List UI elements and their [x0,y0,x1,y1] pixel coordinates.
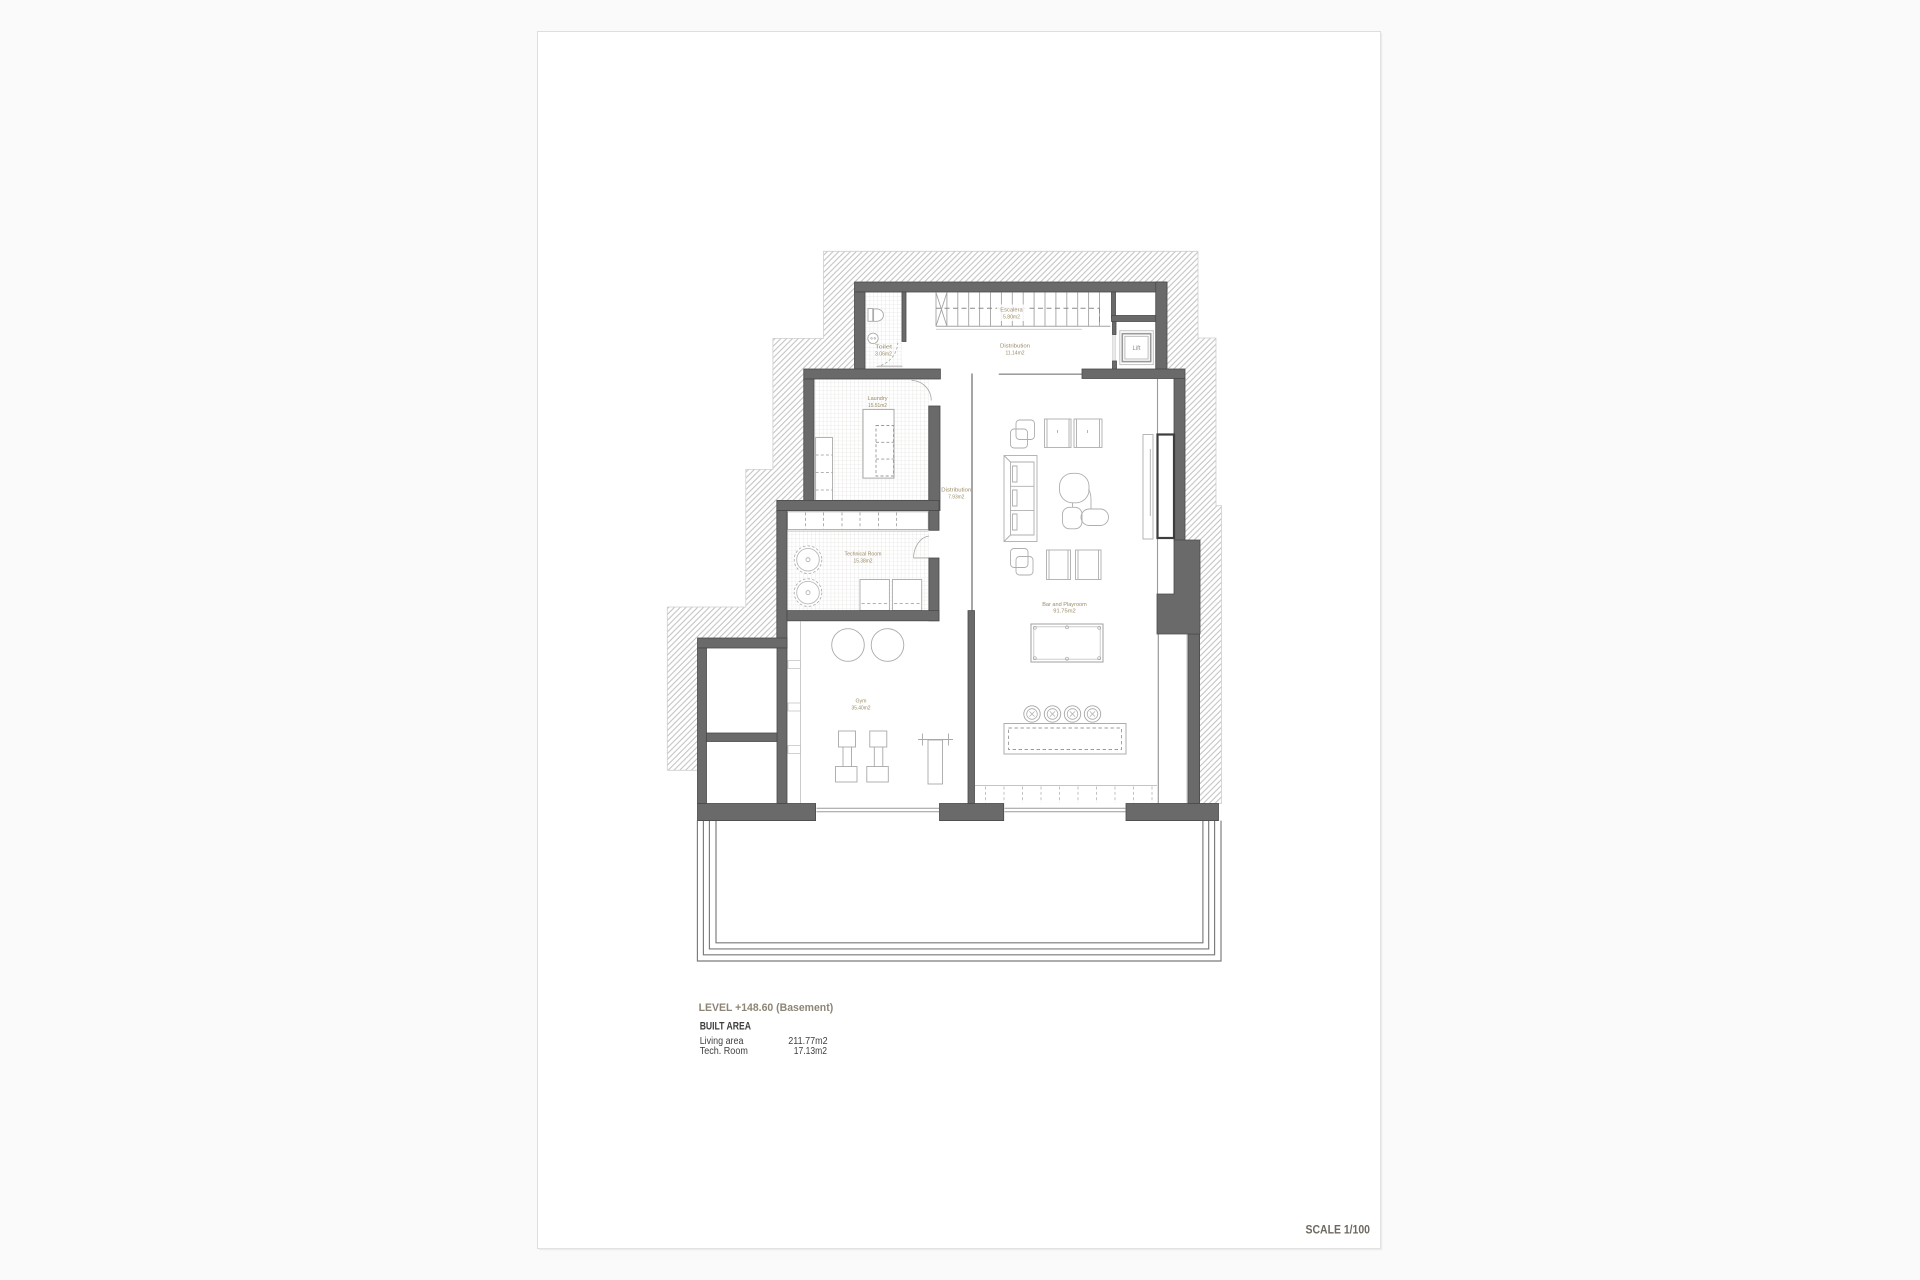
svg-text:BUILT AREA: BUILT AREA [700,1021,752,1033]
svg-text:11.14m2: 11.14m2 [1006,351,1025,357]
svg-text:17.13m2: 17.13m2 [794,1046,827,1057]
svg-text:15.51m2: 15.51m2 [868,403,887,409]
svg-text:7.93m2: 7.93m2 [948,495,964,501]
svg-text:Escalera: Escalera [1000,308,1023,314]
svg-text:Lift: Lift [1132,346,1140,352]
svg-text:Gym: Gym [856,699,867,705]
svg-text:Toilet: Toilet [875,345,892,351]
svg-text:SCALE 1/100: SCALE 1/100 [1306,1225,1371,1237]
svg-text:91.75m2: 91.75m2 [1053,609,1075,615]
svg-text:5.80m2: 5.80m2 [1003,315,1020,321]
svg-text:LEVEL +148.60 (Basement): LEVEL +148.60 (Basement) [699,1002,834,1014]
svg-text:Technical Room: Technical Room [845,552,882,558]
svg-text:Bar and Playroom: Bar and Playroom [1042,602,1087,608]
svg-text:Tech. Room: Tech. Room [700,1046,748,1057]
svg-text:15.38m2: 15.38m2 [854,559,873,565]
svg-text:35.40m2: 35.40m2 [852,706,871,712]
svg-text:Distribution: Distribution [1000,344,1030,350]
svg-text:3.06m2: 3.06m2 [875,352,892,358]
svg-text:Laundry: Laundry [868,396,888,402]
svg-text:Distribution: Distribution [941,488,971,494]
